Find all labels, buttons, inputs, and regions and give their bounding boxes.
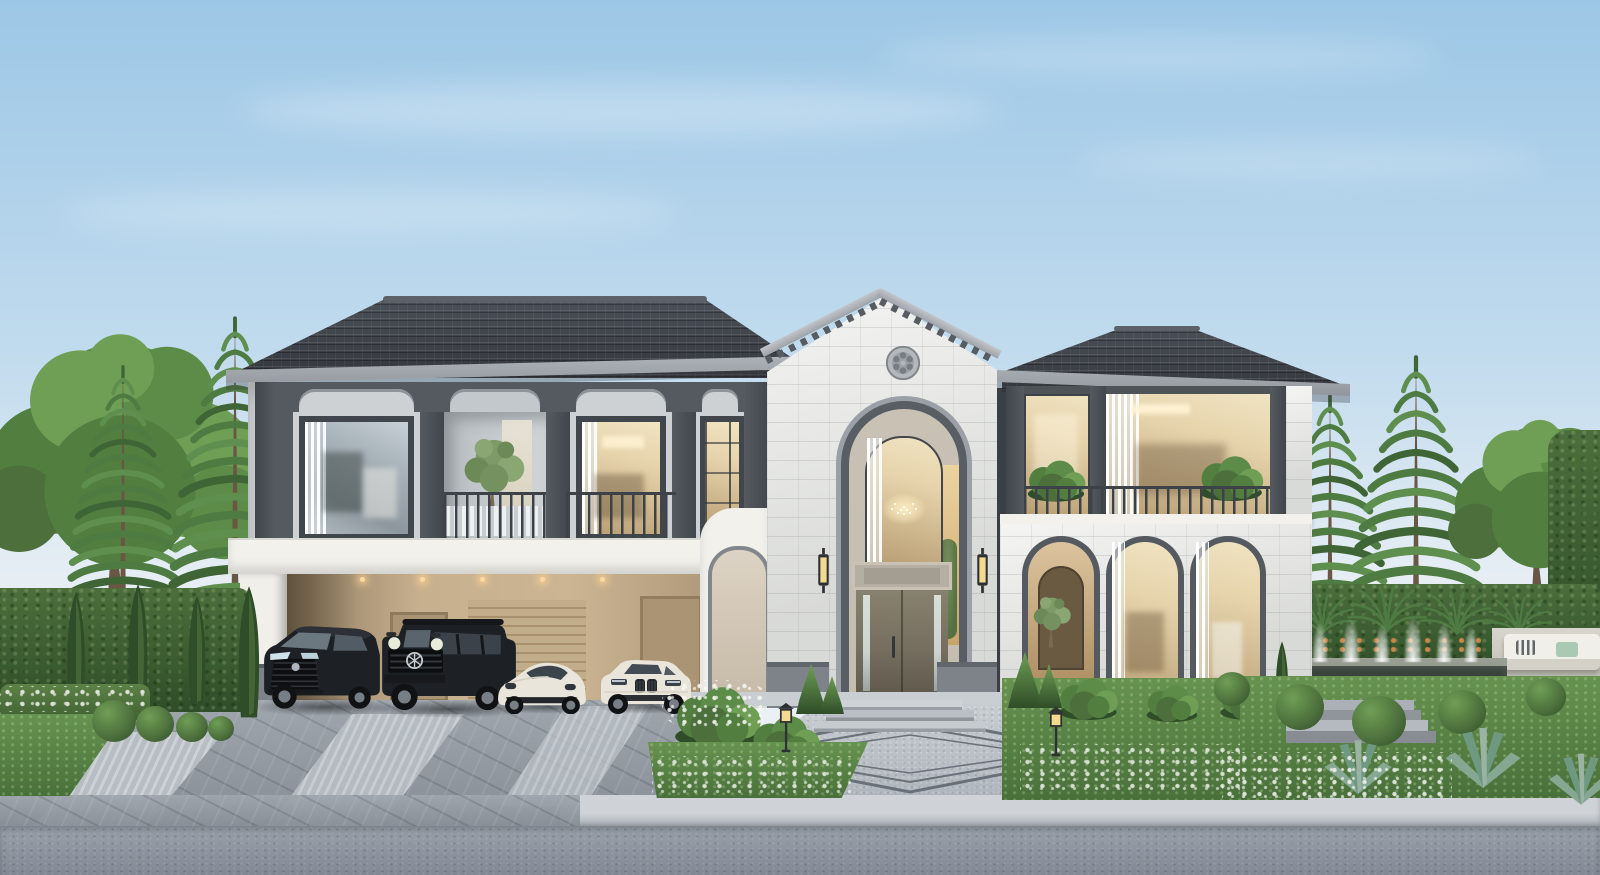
- chandelier: [883, 494, 925, 524]
- cypress-tall-by-column: [226, 570, 272, 736]
- right-corner-stone-upper: [1286, 386, 1312, 518]
- door-sidelight: [863, 595, 870, 691]
- boxwood-ball: [136, 706, 174, 742]
- vehicle-white-sports-sedan: [494, 652, 590, 714]
- entry-step: [814, 721, 986, 732]
- balcony-railing: [566, 492, 676, 543]
- cloud: [240, 84, 1000, 136]
- vehicle-black-minivan: [256, 614, 388, 714]
- wall-sconce: [816, 548, 831, 594]
- garden-lantern-post: [1044, 706, 1068, 758]
- porch-tree: [1026, 570, 1078, 670]
- water-jet: [1374, 626, 1390, 662]
- left-wing-pier: [255, 382, 293, 538]
- water-jet: [1342, 620, 1360, 662]
- entry-arch-reveal: [849, 409, 959, 696]
- agave-plant: [1540, 752, 1600, 808]
- entry-tower: [767, 288, 997, 708]
- upper-window: [305, 422, 408, 534]
- exterior-render-scene: [0, 0, 1600, 875]
- cloud: [880, 36, 1440, 76]
- garden-lantern-post: [774, 702, 798, 754]
- entry-arch-window: [865, 436, 943, 566]
- boxwood-ball: [176, 712, 208, 742]
- cypress-shrub: [168, 594, 226, 708]
- door-handle: [892, 636, 895, 658]
- left-wing-arch-spandrel: [293, 382, 744, 412]
- rosette-medallion: [884, 344, 922, 382]
- wall-sconce: [975, 548, 990, 594]
- boxwood-ball: [208, 716, 234, 741]
- flower-bed-right-front: [1222, 752, 1452, 798]
- entry-door: [856, 590, 948, 696]
- sofa-cushion-green: [1556, 642, 1578, 657]
- cloud: [60, 190, 680, 234]
- right-balcony-column: [1006, 386, 1024, 518]
- sofa-cushion-striped: [1516, 640, 1536, 655]
- road: [0, 826, 1600, 875]
- boxwood-ball: [1214, 672, 1250, 706]
- entry-step: [838, 700, 962, 710]
- carport-downlights: [350, 577, 630, 583]
- entry-transom: [852, 562, 952, 590]
- right-wing-ridge-cap: [1114, 326, 1200, 331]
- water-jet: [1436, 624, 1452, 662]
- left-wing-ridge-cap: [383, 296, 707, 302]
- boxwood-ball: [1526, 678, 1566, 716]
- entry-step: [826, 710, 974, 721]
- garden-bush: [1128, 676, 1216, 722]
- water-jet: [1312, 624, 1328, 662]
- flower-row-left: [652, 756, 852, 796]
- boxwood-ball: [92, 700, 136, 742]
- right-balcony-column: [1270, 386, 1286, 518]
- water-jet: [1464, 628, 1478, 662]
- boxwood-ball: [1276, 684, 1324, 730]
- cloud: [1080, 142, 1540, 180]
- balcony-railing: [444, 492, 546, 543]
- water-jet: [1404, 618, 1422, 662]
